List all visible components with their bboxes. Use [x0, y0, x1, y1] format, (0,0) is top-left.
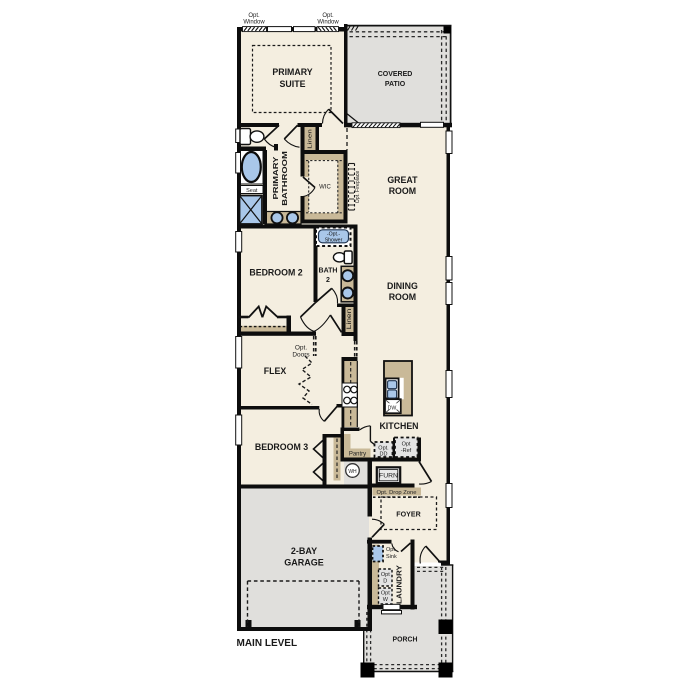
svg-text:Seat: Seat — [246, 188, 258, 194]
svg-text:Opt.: Opt. — [322, 13, 334, 19]
svg-text:ROOM: ROOM — [389, 186, 416, 196]
svg-text:GARAGE: GARAGE — [284, 558, 324, 568]
svg-text:DW: DW — [388, 405, 397, 411]
svg-text:PRIMARY: PRIMARY — [272, 156, 280, 199]
svg-text:-Ref: -Ref — [401, 448, 412, 454]
svg-text:2-BAY: 2-BAY — [291, 546, 317, 556]
svg-text:ROOM: ROOM — [389, 292, 416, 302]
svg-text:Opt: Opt — [381, 591, 390, 597]
svg-text:Opt.: Opt. — [386, 547, 397, 553]
svg-text:DD: DD — [380, 452, 388, 458]
svg-text:Sink: Sink — [386, 554, 397, 560]
svg-text:Doors: Doors — [292, 352, 310, 359]
svg-text:Opt. Drop Zone: Opt. Drop Zone — [377, 490, 417, 496]
svg-text:FLEX: FLEX — [264, 366, 287, 376]
svg-text:WH: WH — [348, 469, 357, 475]
svg-text:Opt. Fireplace: Opt. Fireplace — [355, 171, 361, 204]
svg-text:Opt: Opt — [402, 442, 411, 448]
svg-text:LAUNDRY: LAUNDRY — [395, 565, 403, 604]
svg-text:Opt.: Opt. — [248, 13, 260, 19]
svg-text:SUITE: SUITE — [280, 79, 306, 89]
svg-text:PATIO: PATIO — [385, 81, 406, 88]
svg-text:Window: Window — [243, 20, 265, 26]
svg-text:Opt: Opt — [381, 572, 390, 578]
svg-text:BATHROOM: BATHROOM — [281, 151, 289, 206]
svg-text:WIC: WIC — [319, 185, 331, 191]
svg-text:FURN: FURN — [379, 473, 398, 480]
svg-text:MAIN LEVEL: MAIN LEVEL — [237, 638, 298, 649]
svg-text:PRIMARY: PRIMARY — [272, 67, 312, 77]
svg-text:Window: Window — [317, 20, 339, 26]
svg-text:BEDROOM 2: BEDROOM 2 — [249, 268, 302, 278]
svg-text:Pantry: Pantry — [349, 452, 366, 458]
svg-text:FOYER: FOYER — [396, 511, 420, 519]
svg-text:Linen: Linen — [307, 129, 313, 149]
svg-text:GREAT: GREAT — [387, 175, 418, 185]
svg-text:DINING: DINING — [387, 281, 418, 291]
svg-text:KITCHEN: KITCHEN — [379, 421, 418, 431]
svg-text:COVERED: COVERED — [378, 71, 413, 78]
svg-text:W: W — [383, 597, 389, 603]
svg-text:BATH: BATH — [319, 268, 338, 275]
svg-text:Opt.: Opt. — [295, 345, 307, 352]
svg-text:BEDROOM 3: BEDROOM 3 — [255, 442, 308, 452]
svg-text:Linen: Linen — [345, 309, 352, 330]
svg-text:2: 2 — [326, 277, 330, 284]
svg-text:D: D — [383, 579, 387, 585]
svg-text:PORCH: PORCH — [393, 637, 418, 644]
svg-text:Shower: Shower — [325, 238, 343, 244]
